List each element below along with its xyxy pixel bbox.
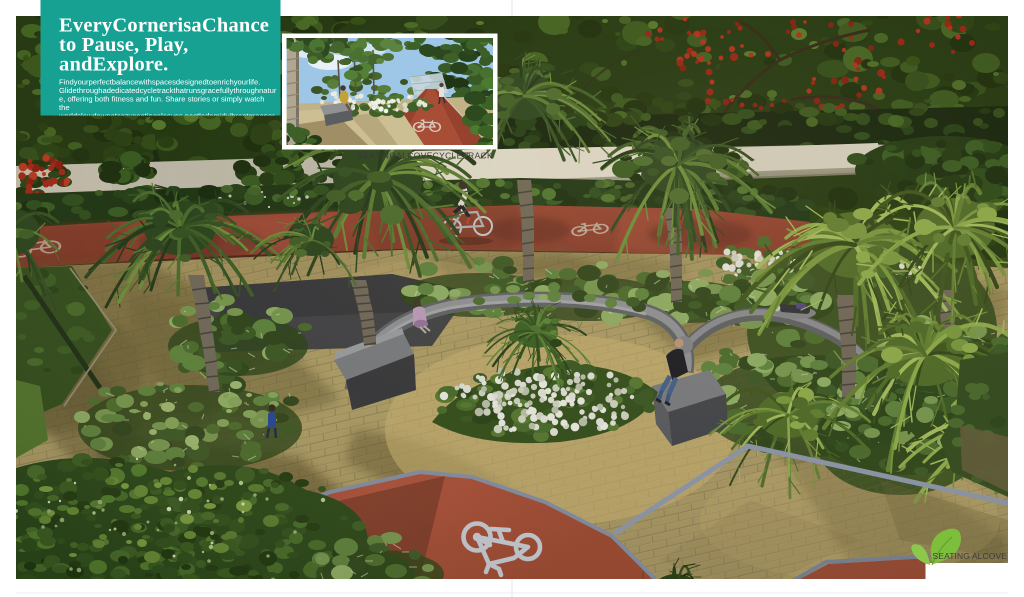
svg-text:SEATINGALCOVECYCLETRACK: SEATINGALCOVECYCLETRACK <box>357 151 493 161</box>
svg-text:andExplore.: andExplore. <box>59 54 168 76</box>
svg-text:SEATING ALCOVE: SEATING ALCOVE <box>933 551 1008 561</box>
svg-text:e, offering both fitness and f: e, offering both fitness and fun. Share … <box>59 95 264 104</box>
